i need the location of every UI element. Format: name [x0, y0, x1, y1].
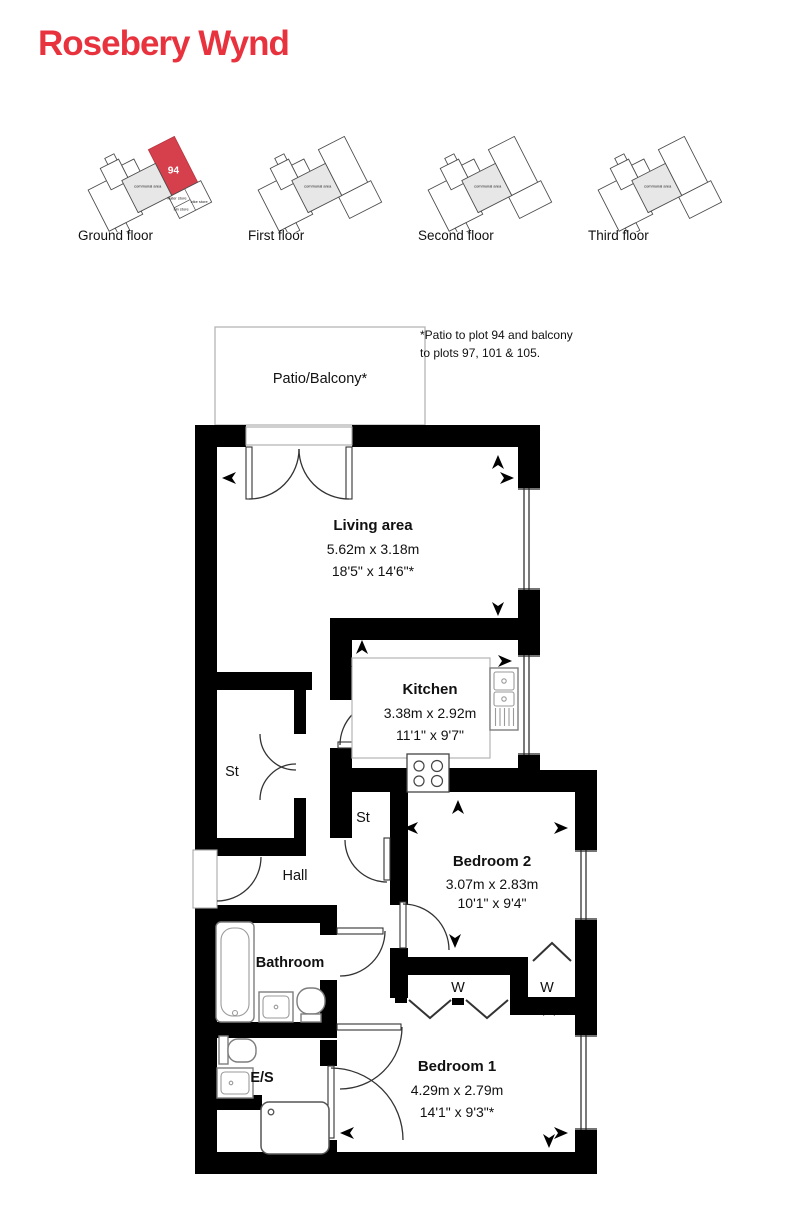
ensuite-basin [217, 1068, 253, 1098]
floor-plan: Patio/Balcony* *Patio to plot 94 and bal… [0, 0, 800, 1205]
bedroom1-imperial: 14'1" x 9'3"* [420, 1104, 495, 1120]
bedroom2-imperial: 10'1" x 9'4" [458, 895, 527, 911]
bedroom1-metric: 4.29m x 2.79m [411, 1082, 504, 1098]
living-area-imperial: 18'5" x 14'6"* [332, 563, 415, 579]
ensuite-label: E/S [250, 1070, 274, 1086]
kitchen-window [518, 655, 540, 755]
living-window [518, 488, 540, 590]
shower [261, 1102, 329, 1154]
kitchen-metric: 3.38m x 2.92m [384, 705, 477, 721]
bedroom2-window [575, 850, 597, 920]
bedroom2-door [400, 902, 449, 950]
wardrobe2-label: W [540, 980, 554, 996]
bathroom-toilet [297, 988, 325, 1022]
patio-label: Patio/Balcony* [273, 371, 368, 387]
patio-doors [246, 427, 352, 499]
kitchen-sink [490, 668, 518, 730]
store-label: St [225, 764, 239, 780]
store-doors [260, 734, 296, 800]
bedroom1-label: Bedroom 1 [418, 1058, 496, 1075]
bedroom2-label: Bedroom 2 [453, 853, 531, 870]
bathroom-door [337, 928, 385, 976]
svg-text:to plots 97, 101 & 105.: to plots 97, 101 & 105. [420, 346, 540, 360]
bathroom-label: Bathroom [256, 955, 324, 971]
living-area-label: Living area [333, 517, 413, 534]
kitchen-label: Kitchen [402, 681, 457, 698]
store2-door [345, 838, 390, 882]
store2-label: St [356, 810, 370, 826]
living-area-metric: 5.62m x 3.18m [327, 541, 420, 557]
plan-note: *Patio to plot 94 and balcony to plots 9… [420, 328, 573, 360]
patio-area: Patio/Balcony* [215, 327, 425, 425]
bedroom1-window [575, 1035, 597, 1130]
wardrobe1-label: W [451, 980, 465, 996]
bedroom2-metric: 3.07m x 2.83m [446, 876, 539, 892]
bathtub [216, 922, 254, 1022]
ensuite-door [328, 1066, 403, 1140]
ensuite-toilet [219, 1036, 256, 1064]
kitchen-hob [407, 754, 449, 792]
bathroom-basin [259, 992, 293, 1022]
hall-label: Hall [283, 868, 308, 884]
entrance-door [193, 850, 261, 908]
kitchen-imperial: 11'1" x 9'7" [396, 727, 464, 743]
svg-text:*Patio to plot 94 and balcony: *Patio to plot 94 and balcony [420, 328, 573, 342]
